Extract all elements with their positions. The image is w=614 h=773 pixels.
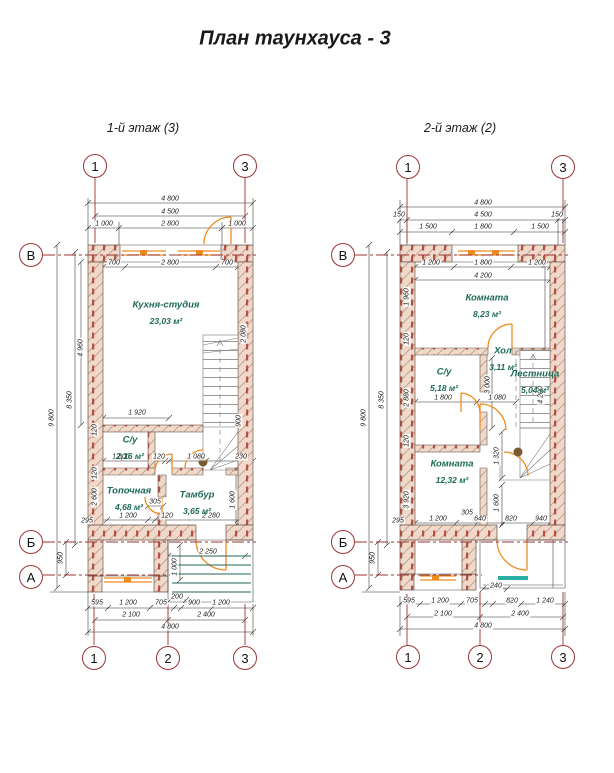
axis-bubble-А: А	[331, 565, 355, 589]
dim-label: 1 800	[473, 224, 493, 231]
dim-label: 640	[473, 516, 487, 523]
dim-label: 120	[92, 466, 99, 480]
room-area-label: 12,32 м²	[436, 476, 469, 485]
axis-bubble-В: В	[19, 243, 43, 267]
dim-label: 120	[160, 513, 174, 520]
dim-label: 200	[170, 594, 184, 601]
dim-label: 2 400	[196, 612, 216, 619]
axis-bubble-3: 3	[551, 155, 575, 179]
dim-label: 4 200	[473, 273, 493, 280]
dim-label: 3 920	[404, 490, 411, 510]
dim-label: 4 800	[160, 196, 180, 203]
axis-bubble-3: 3	[233, 154, 257, 178]
axis-bubble-2: 2	[468, 645, 492, 669]
dim-label: 4 800	[160, 624, 180, 631]
axis-bubble-1: 1	[83, 154, 107, 178]
dim-label: 1 920	[127, 410, 147, 417]
dim-label: 120	[92, 423, 99, 437]
dim-label: 305	[460, 510, 474, 517]
axis-bubble-2: 2	[156, 646, 180, 670]
dim-label: 705	[154, 600, 168, 607]
dim-label: 595	[402, 598, 416, 605]
dim-label: 1 960	[404, 287, 411, 307]
dim-label: 2 250	[198, 549, 218, 556]
dim-label: 4 800	[473, 200, 493, 207]
dim-label: 150	[392, 212, 406, 219]
dim-label: 230	[234, 454, 248, 461]
dim-label: 120	[404, 434, 411, 448]
dim-label: 2 400	[510, 611, 530, 618]
room-label: С/у	[123, 435, 138, 445]
dim-label: 1 000	[94, 221, 114, 228]
dim-label: 120	[152, 454, 166, 461]
room-label: Хол	[494, 346, 512, 356]
dim-label: 8 350	[67, 390, 74, 410]
dim-label: 1 200	[428, 516, 448, 523]
dim-label: 2 880	[404, 388, 411, 408]
room-label: Комната	[465, 293, 508, 303]
dim-label: 8 350	[379, 390, 386, 410]
annotation-layer: 4 8004 5001 0002 8001 0007002 8007001 92…	[0, 0, 614, 773]
room-area-label: 5,04 м²	[521, 386, 549, 395]
dim-label: 900	[187, 600, 201, 607]
dim-label: 1 200	[118, 513, 138, 520]
axis-bubble-1: 1	[82, 646, 106, 670]
dim-label: 305	[148, 499, 162, 506]
dim-label: 240	[489, 583, 503, 590]
room-area-label: 3,65 м²	[183, 507, 211, 516]
dim-label: 940	[534, 516, 548, 523]
dim-label: 950	[58, 551, 65, 565]
dim-label: 2 080	[241, 324, 248, 344]
dim-label: 2 100	[433, 611, 453, 618]
room-area-label: 4,68 м²	[115, 503, 143, 512]
axis-bubble-3: 3	[551, 645, 575, 669]
dim-label: 9 800	[49, 408, 56, 428]
room-label: Топочная	[107, 486, 152, 496]
dim-label: 295	[391, 518, 405, 525]
dim-label: 1 200	[118, 600, 138, 607]
axis-bubble-3: 3	[233, 646, 257, 670]
axis-bubble-1: 1	[396, 645, 420, 669]
dim-label: 2 800	[160, 260, 180, 267]
dim-label: 2 100	[121, 612, 141, 619]
dim-label: 700	[107, 260, 121, 267]
dim-label: 1 500	[418, 224, 438, 231]
dim-label: 1 800	[473, 260, 493, 267]
dim-label: 4 500	[160, 209, 180, 216]
dim-label: 120	[404, 332, 411, 346]
dim-label: 1 800	[433, 395, 453, 402]
dim-label: 1 000	[227, 221, 247, 228]
dim-label: 4 800	[473, 623, 493, 630]
axis-bubble-Б: Б	[331, 530, 355, 554]
room-area-label: 8,23 м²	[473, 310, 501, 319]
dim-label: 1 240	[535, 598, 555, 605]
axis-bubble-Б: Б	[19, 530, 43, 554]
dim-label: 295	[80, 518, 94, 525]
room-label: Комната	[430, 459, 473, 469]
dim-label: 950	[370, 551, 377, 565]
dim-label: 595	[90, 600, 104, 607]
axis-bubble-В: В	[331, 243, 355, 267]
dim-label: 900	[236, 414, 243, 428]
dim-label: 705	[465, 598, 479, 605]
room-label: Лестница	[511, 369, 560, 379]
dim-label: 1 200	[211, 600, 231, 607]
room-area-label: 23,03 м²	[150, 317, 183, 326]
dim-label: 1 600	[494, 493, 501, 513]
dim-label: 2 800	[160, 221, 180, 228]
room-label: Кухня-студия	[133, 300, 200, 310]
dim-label: 2 600	[92, 487, 99, 507]
axis-bubble-1: 1	[396, 155, 420, 179]
axis-bubble-А: А	[19, 565, 43, 589]
dim-label: 3 000	[485, 375, 492, 395]
dim-label: 1 200	[527, 260, 547, 267]
room-area-label: 5,18 м²	[430, 384, 458, 393]
room-area-label: 2,16 м²	[116, 452, 144, 461]
room-label: С/у	[437, 367, 452, 377]
dim-label: 1 600	[230, 490, 237, 510]
dim-label: 820	[504, 516, 518, 523]
dim-label: 1 200	[430, 598, 450, 605]
room-label: Тамбур	[180, 490, 215, 500]
dim-label: 4 500	[473, 212, 493, 219]
dim-label: 9 800	[361, 408, 368, 428]
dim-label: 4 960	[78, 338, 85, 358]
townhouse-plan-sheet: План таунхауса - 3 1-й этаж (3) 2-й этаж…	[0, 0, 614, 773]
dim-label: 1 500	[530, 224, 550, 231]
dim-label: 1 320	[494, 446, 501, 466]
dim-label: 1 080	[186, 454, 206, 461]
dim-label: 820	[505, 598, 519, 605]
dim-label: 1 000	[172, 557, 179, 577]
dim-label: 150	[550, 212, 564, 219]
dim-label: 1 200	[421, 260, 441, 267]
dim-label: 1 080	[487, 395, 507, 402]
dim-label: 700	[220, 260, 234, 267]
